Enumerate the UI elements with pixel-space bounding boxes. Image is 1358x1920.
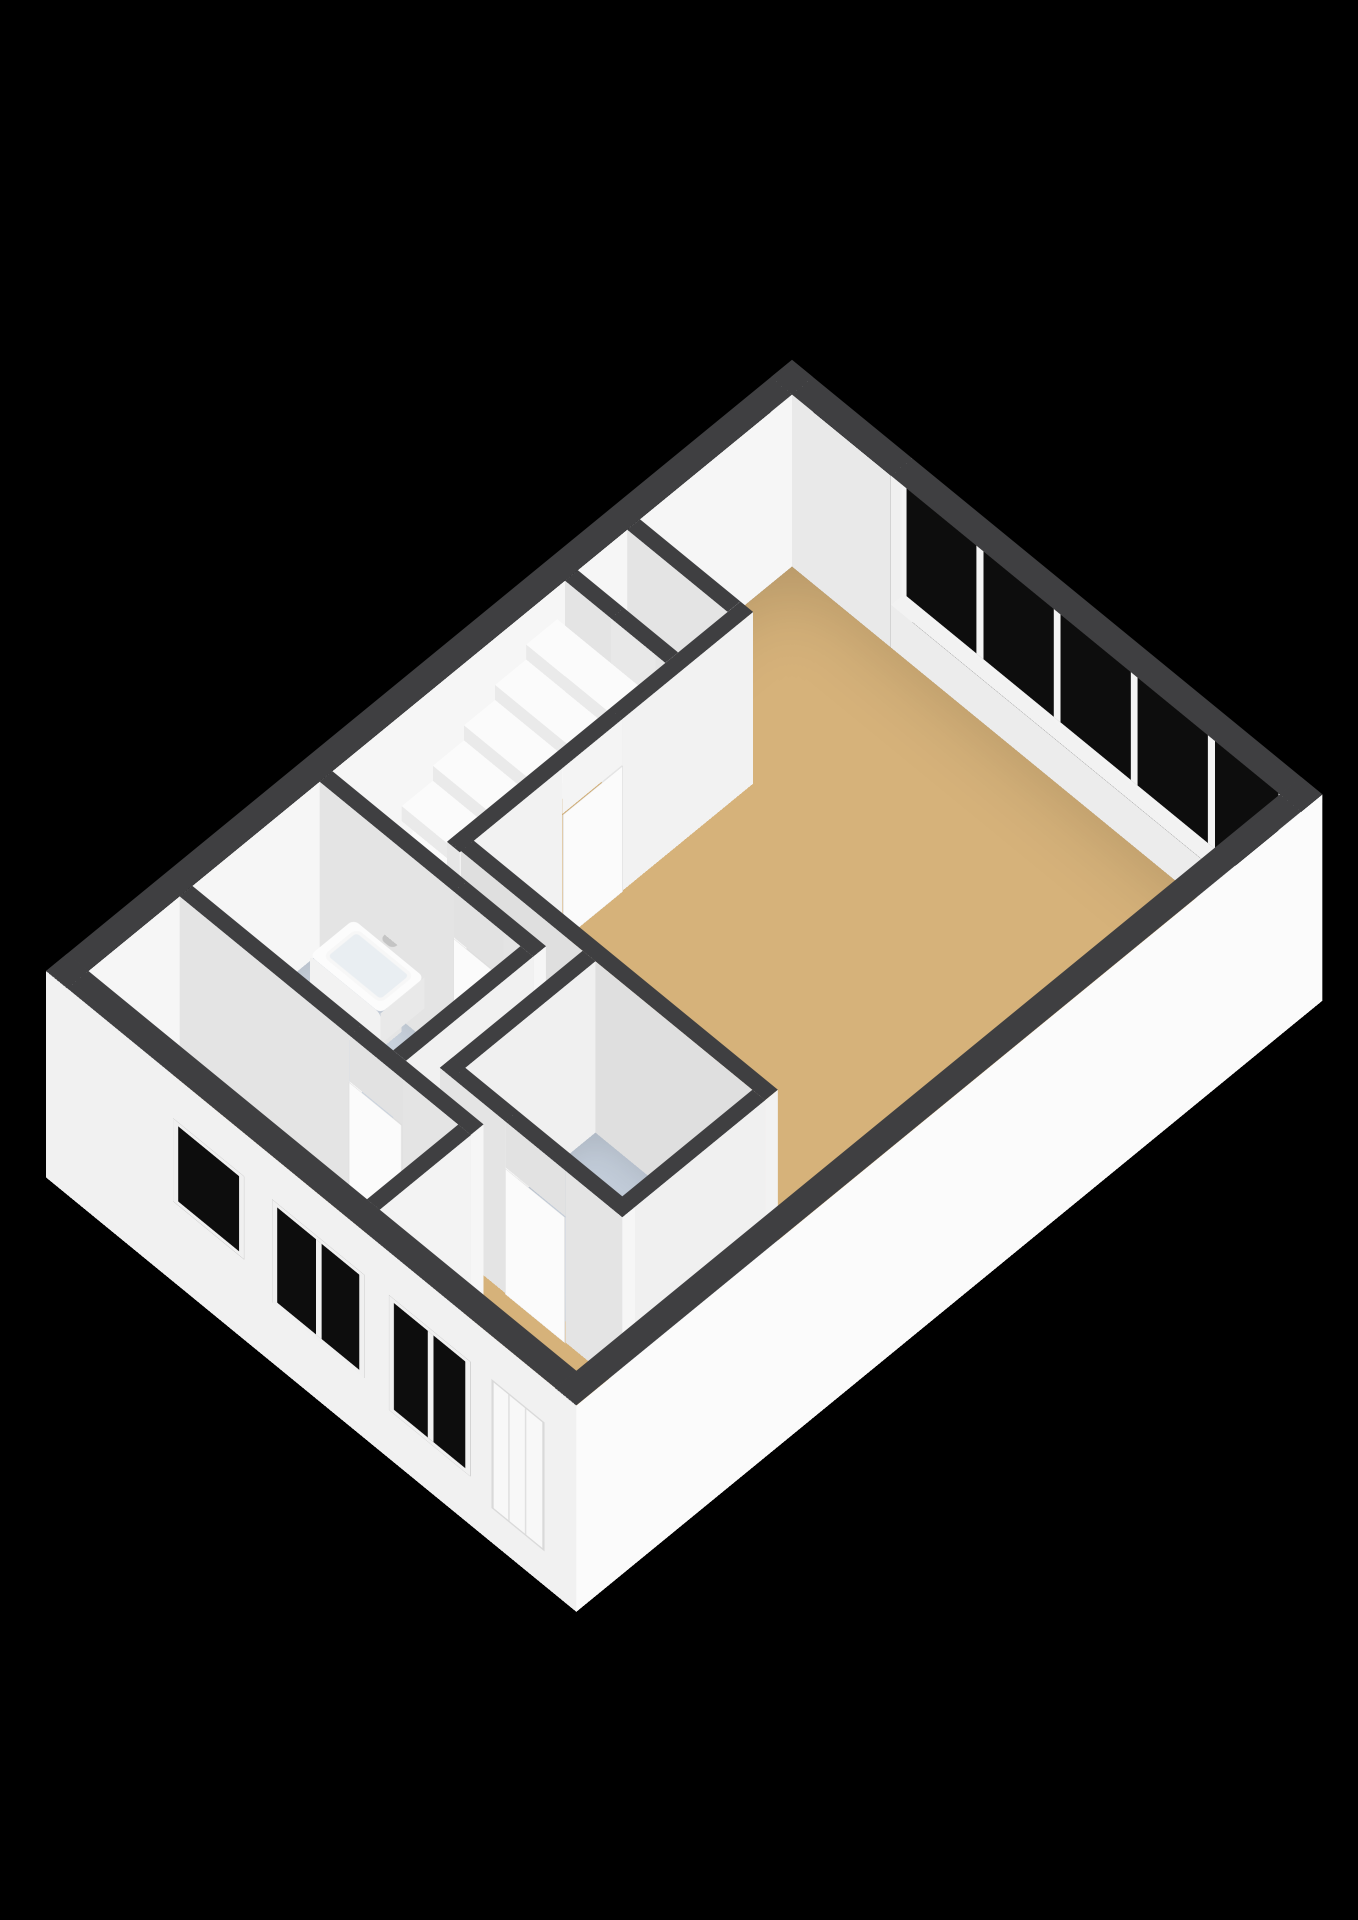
front-door (491, 1379, 544, 1551)
facade-window-tall (389, 1295, 470, 1476)
canvas-background (0, 0, 1358, 1920)
facade-window-small (173, 1118, 244, 1259)
facade-window-wide (272, 1199, 364, 1378)
wall-bedroom-north-b-east-face (471, 1125, 484, 1307)
